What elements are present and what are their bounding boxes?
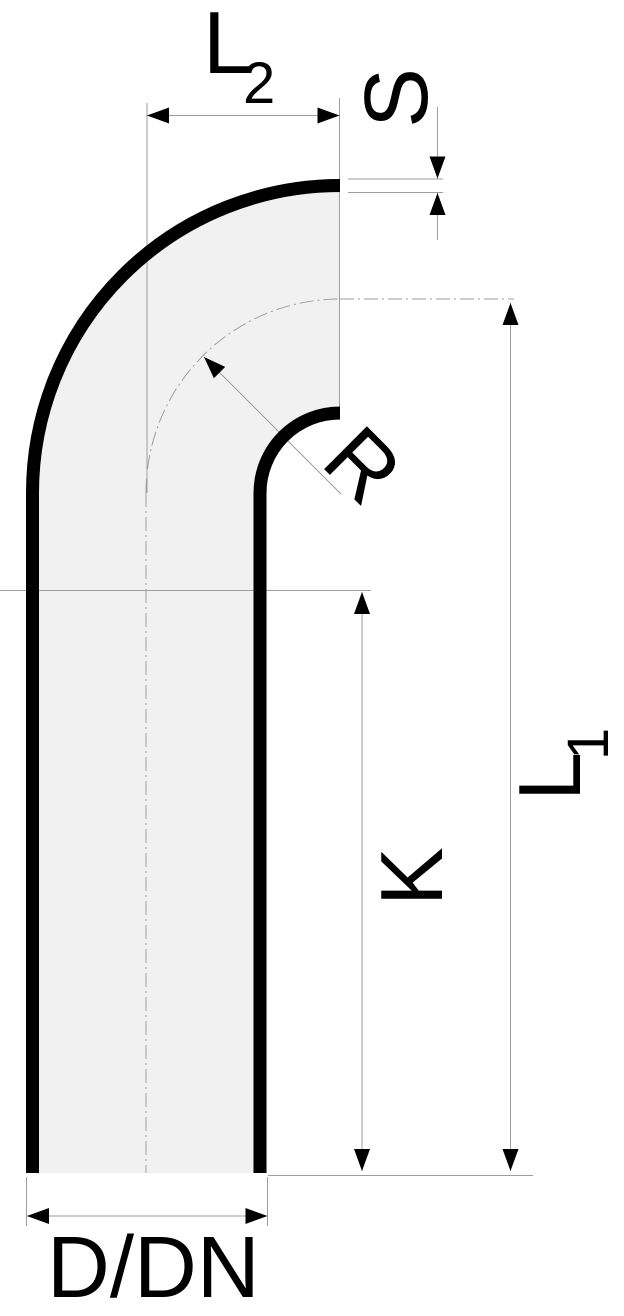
dimension-ddn: D/DN xyxy=(27,1177,268,1316)
label-s: S xyxy=(347,68,447,128)
dimension-s: S xyxy=(347,68,447,240)
label-l1: L1 xyxy=(500,728,621,801)
k-arrowhead-down-icon xyxy=(354,1149,370,1171)
dimension-l1: L1 xyxy=(268,303,621,1176)
pipe-inner-wall xyxy=(260,413,340,1173)
label-r: R xyxy=(306,407,421,522)
k-arrowhead-up-icon xyxy=(354,592,370,614)
l1-arrowhead-down-icon xyxy=(503,1149,519,1171)
l2-arrowhead-left-icon xyxy=(147,108,169,124)
label-ddn: D/DN xyxy=(47,1219,260,1316)
l1-arrowhead-up-icon xyxy=(503,303,519,325)
ddn-arrowhead-left-icon xyxy=(27,1208,49,1224)
pipe-bend-diagram: L2 S R K xyxy=(0,0,624,1316)
label-k: K xyxy=(362,847,461,906)
s-arrowhead-up-icon xyxy=(430,193,446,215)
label-l2: L2 xyxy=(203,0,275,116)
l2-arrowhead-right-icon xyxy=(318,108,340,124)
drawing-canvas: L2 S R K xyxy=(0,0,624,1316)
s-arrowhead-down-icon xyxy=(430,157,446,179)
